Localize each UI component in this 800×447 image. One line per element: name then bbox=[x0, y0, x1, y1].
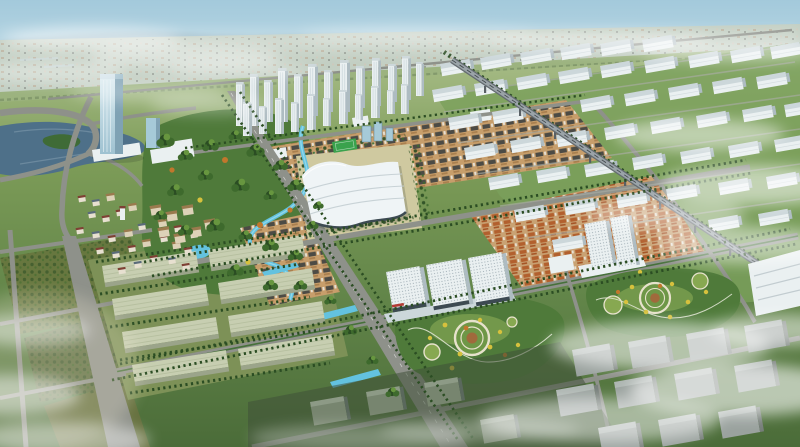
aerial-city-rendering bbox=[0, 0, 800, 447]
